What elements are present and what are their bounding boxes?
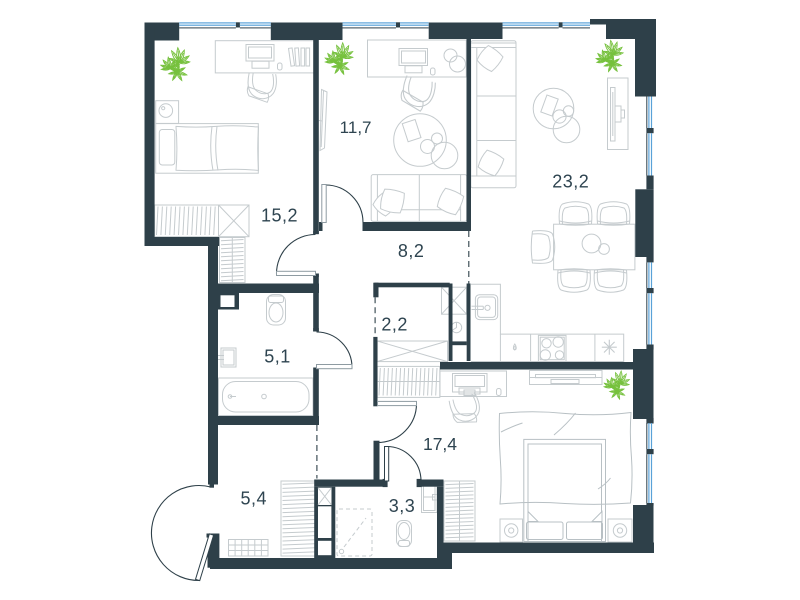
svg-text:5,1: 5,1 [264, 347, 291, 367]
svg-text:5,4: 5,4 [241, 489, 268, 509]
svg-text:15,2: 15,2 [261, 206, 298, 226]
svg-text:8,2: 8,2 [398, 241, 425, 261]
svg-text:23,2: 23,2 [552, 172, 589, 192]
svg-text:2,2: 2,2 [381, 315, 408, 335]
svg-text:3,3: 3,3 [389, 496, 416, 516]
svg-text:11,7: 11,7 [340, 118, 372, 137]
svg-text:17,4: 17,4 [423, 434, 457, 454]
